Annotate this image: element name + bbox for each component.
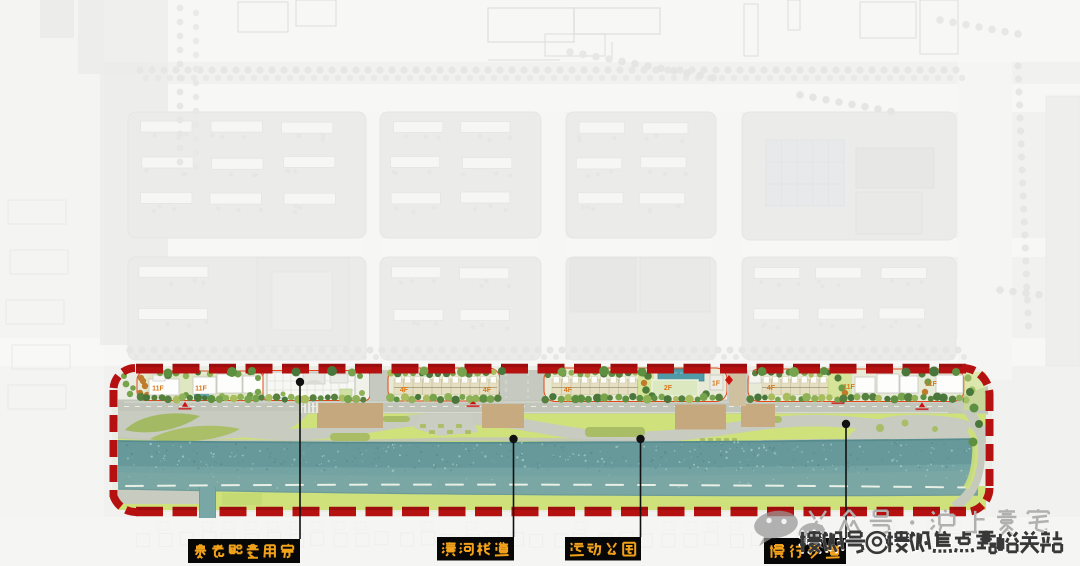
svg-text:11F: 11F xyxy=(152,386,164,393)
svg-text:2F: 2F xyxy=(664,385,673,392)
svg-text:4F: 4F xyxy=(400,387,409,394)
svg-text:1F: 1F xyxy=(712,381,721,388)
svg-text:11F: 11F xyxy=(843,384,855,391)
svg-text:4F: 4F xyxy=(483,387,492,394)
svg-text:4F: 4F xyxy=(564,387,573,394)
svg-text:11F: 11F xyxy=(195,386,207,393)
svg-text:4F: 4F xyxy=(767,385,776,392)
svg-text:11F: 11F xyxy=(925,381,937,388)
